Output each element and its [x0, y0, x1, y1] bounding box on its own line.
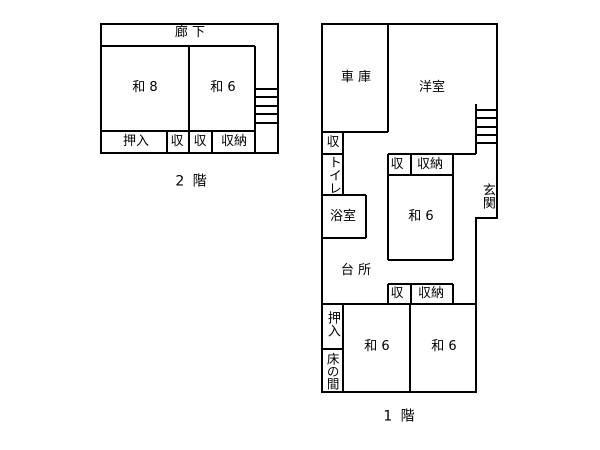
label-oshiire-2f: 押入 — [123, 135, 149, 149]
label-wa8-2f: 和 8 — [132, 81, 157, 95]
caption-floor2: 2 階 — [175, 175, 208, 190]
label-shuno-lower-1f: 収納 — [418, 287, 444, 301]
floorplan-canvas: 廊 下 和 8 和 6 押入 収 収 収納 2 階 車 庫 洋室 収 トイレ 浴… — [0, 0, 600, 450]
label-genkan: 玄関 — [480, 183, 494, 209]
label-shu-top-1f: 収 — [326, 136, 339, 150]
label-wa6-bottom-right: 和 6 — [431, 340, 456, 354]
label-shuno-2f: 収納 — [221, 135, 247, 149]
label-kitchen: 台 所 — [341, 264, 371, 278]
label-oshiire-1f: 押入 — [325, 311, 339, 337]
label-wa6-2f: 和 6 — [210, 81, 235, 95]
caption-floor1: 1 階 — [383, 410, 416, 425]
label-wa6-middle: 和 6 — [408, 210, 433, 224]
label-tokonoma: 床の間 — [325, 352, 338, 390]
label-garage: 車 庫 — [341, 71, 371, 85]
stairs-2f-icon — [255, 89, 278, 123]
stairs-1f-icon — [476, 104, 497, 154]
label-toilet: トイレ — [326, 156, 340, 195]
label-shuno-upper-1f: 収納 — [417, 158, 443, 172]
label-shu-left-2f: 収 — [170, 135, 183, 149]
label-shu-lower-1f: 収 — [390, 287, 403, 301]
floorplan-walls — [0, 0, 600, 450]
label-shu-upper-1f: 収 — [390, 158, 403, 172]
label-bath: 浴室 — [330, 210, 356, 224]
label-corridor: 廊 下 — [175, 26, 205, 40]
label-wa6-bottom-left: 和 6 — [364, 340, 389, 354]
label-shu-right-2f: 収 — [193, 135, 206, 149]
label-western-room: 洋室 — [419, 81, 445, 95]
